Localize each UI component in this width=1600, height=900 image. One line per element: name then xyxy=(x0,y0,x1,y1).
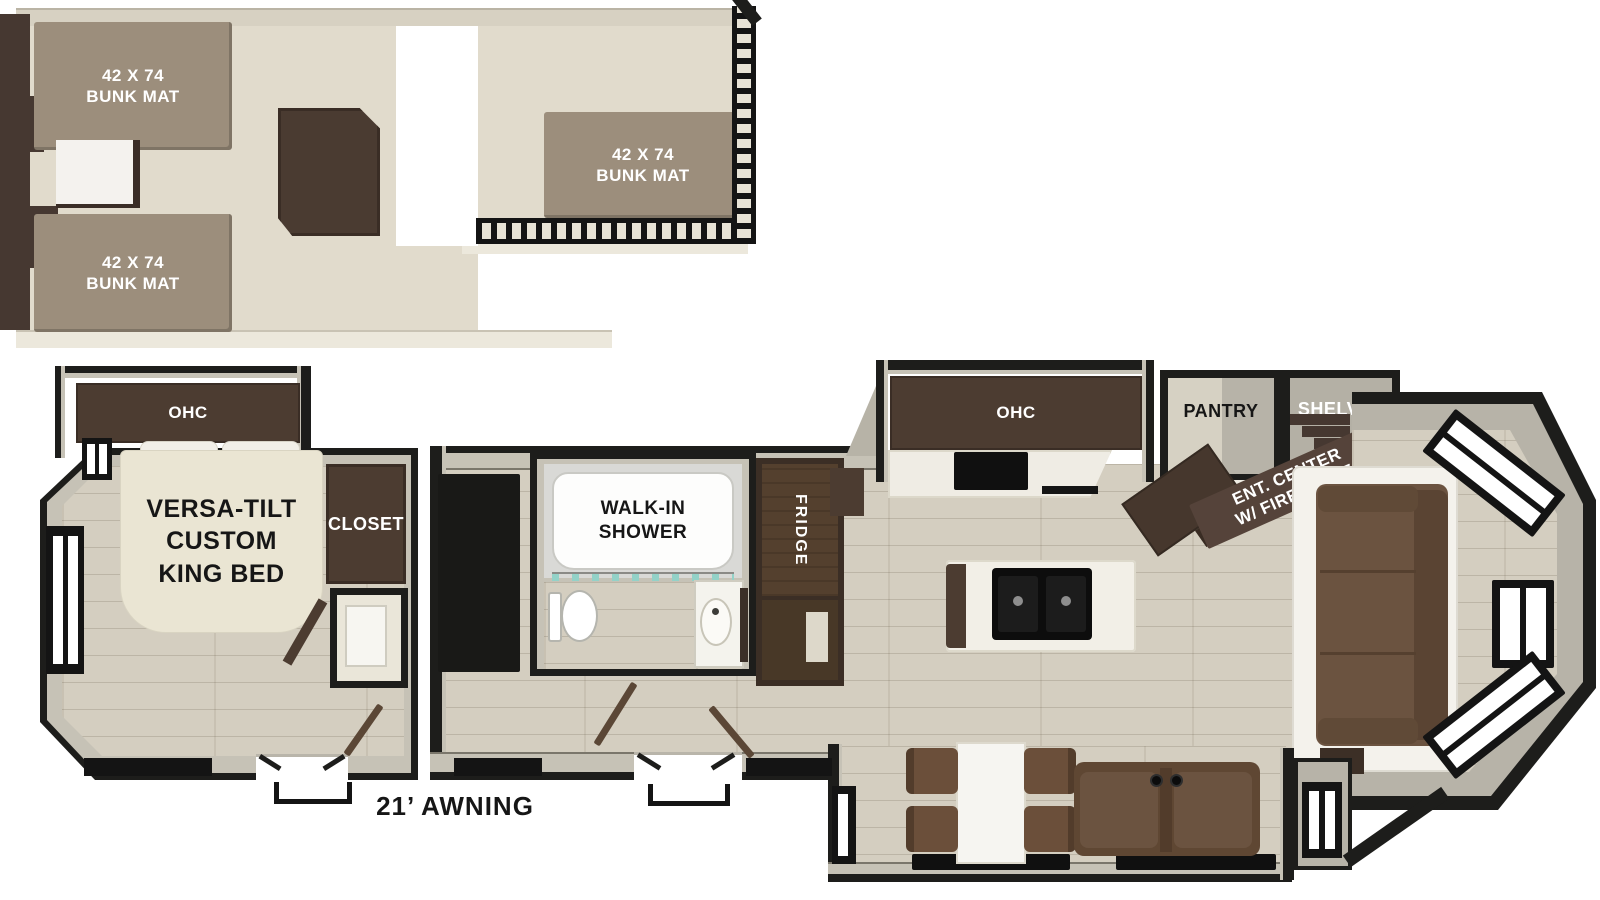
loft-bunk-mat-2: 42 X 74 BUNK MAT xyxy=(34,214,232,332)
sofa-cushion-divider-2 xyxy=(1320,652,1416,655)
sink-drain-left xyxy=(1013,596,1023,606)
kitchen-slide-wedge xyxy=(846,386,876,456)
alcove-step xyxy=(345,605,387,667)
loft-stair-opening xyxy=(396,26,478,246)
sofa-armrest-top xyxy=(1318,486,1418,512)
kitchen-ohc-cabinet: OHC xyxy=(890,376,1142,450)
kitchen-slide-top-wall xyxy=(876,360,1154,374)
bedroom-alcove xyxy=(330,588,408,688)
bedroom-closet: CLOSET xyxy=(326,464,406,584)
slideout-window-sill-right xyxy=(1116,854,1276,870)
sofa-armrest-bottom xyxy=(1318,718,1418,744)
island-sink xyxy=(992,568,1092,640)
counter-dark-strip xyxy=(1042,486,1098,494)
bathroom-sink xyxy=(700,598,732,646)
theater-seats xyxy=(1074,762,1260,856)
rear-window-middle xyxy=(1492,580,1554,668)
loft-bunk-mat-3: 42 X 74 BUNK MAT xyxy=(544,112,742,218)
walkin-shower-label: WALK-IN SHOWER xyxy=(599,497,688,545)
bed-slideout-left-wall xyxy=(55,366,65,458)
cupholder-right xyxy=(1170,774,1183,787)
theater-seat-left xyxy=(1080,772,1158,848)
walkin-shower: WALK-IN SHOWER xyxy=(552,472,734,570)
dinette-chair-4 xyxy=(1024,806,1076,852)
floorplan-canvas: 42 X 74 BUNK MAT 42 X 74 BUNK MAT 42 X 7… xyxy=(0,0,1600,900)
dinette-chair-3 xyxy=(1024,748,1076,794)
island-end-panel xyxy=(946,564,966,648)
fridge-lower-notch xyxy=(806,612,828,662)
shelf-step-1 xyxy=(1290,414,1350,425)
vanity-side-panel xyxy=(740,588,748,662)
bunk-mat-1-label: 42 X 74 BUNK MAT xyxy=(86,65,179,108)
loft-bottom-fascia xyxy=(16,330,612,348)
slideout-right-wall xyxy=(1280,748,1294,880)
awning-label-box: 21’ AWNING xyxy=(350,790,560,822)
king-bed: VERSA-TILT CUSTOM KING BED xyxy=(120,450,323,633)
toilet-tank xyxy=(548,592,562,642)
kitchen-slide-right-wall xyxy=(1142,360,1154,482)
bedroom-bottom-window xyxy=(84,758,212,776)
kitchen-slide-left-wall xyxy=(876,360,888,482)
fridge: FRIDGE xyxy=(762,464,838,596)
loft-railing-horizontal xyxy=(476,218,746,244)
fridge-label: FRIDGE xyxy=(790,494,810,566)
pantry-label: PANTRY xyxy=(1168,400,1274,423)
bunk-mat-2-label: 42 X 74 BUNK MAT xyxy=(86,252,179,295)
dinette-chair-1 xyxy=(906,748,958,794)
kitchen-ohc-label: OHC xyxy=(996,402,1035,423)
closet-label: CLOSET xyxy=(328,513,404,536)
bedroom-ohc-cabinet: OHC xyxy=(76,383,300,443)
bed-slideout-top-wall xyxy=(55,366,311,378)
loft-left-cabinet xyxy=(0,14,30,330)
loft-dresser xyxy=(278,108,380,236)
sofa-cushion-divider-1 xyxy=(1320,570,1416,573)
sofa-backrest xyxy=(1414,490,1448,740)
hall-bottom-window xyxy=(454,758,542,776)
bedroom-top-window xyxy=(82,438,112,480)
main-entry-steps xyxy=(648,784,730,806)
corner-window xyxy=(1302,782,1342,858)
slideout-left-window xyxy=(832,786,856,864)
toilet-bowl xyxy=(561,590,598,642)
loft-nightstand xyxy=(56,140,140,208)
cupholder-left xyxy=(1150,774,1163,787)
bunk-mat-3-label: 42 X 74 BUNK MAT xyxy=(596,144,689,187)
pantry-back-panel xyxy=(1222,378,1274,474)
kitchen-cooktop xyxy=(954,452,1028,490)
bedroom-ohc-label: OHC xyxy=(168,402,207,423)
sofa xyxy=(1316,484,1448,746)
hall-wardrobe xyxy=(438,474,520,672)
bedroom-entry-steps xyxy=(274,782,352,804)
kitchen-bottom-window xyxy=(746,758,832,776)
dinette-table xyxy=(956,742,1026,864)
bathroom-faucet xyxy=(712,608,719,615)
awning-label: 21’ AWNING xyxy=(376,790,534,823)
loft-railing-vertical xyxy=(732,6,756,244)
theater-seat-right xyxy=(1174,772,1252,848)
king-bed-label: VERSA-TILT CUSTOM KING BED xyxy=(146,493,296,591)
loft-bunk-mat-1: 42 X 74 BUNK MAT xyxy=(34,22,232,150)
kitchen-end-cabinet xyxy=(830,468,864,516)
dinette-chair-2 xyxy=(906,806,958,852)
bedroom-left-window xyxy=(46,526,84,674)
sink-drain-right xyxy=(1061,596,1071,606)
